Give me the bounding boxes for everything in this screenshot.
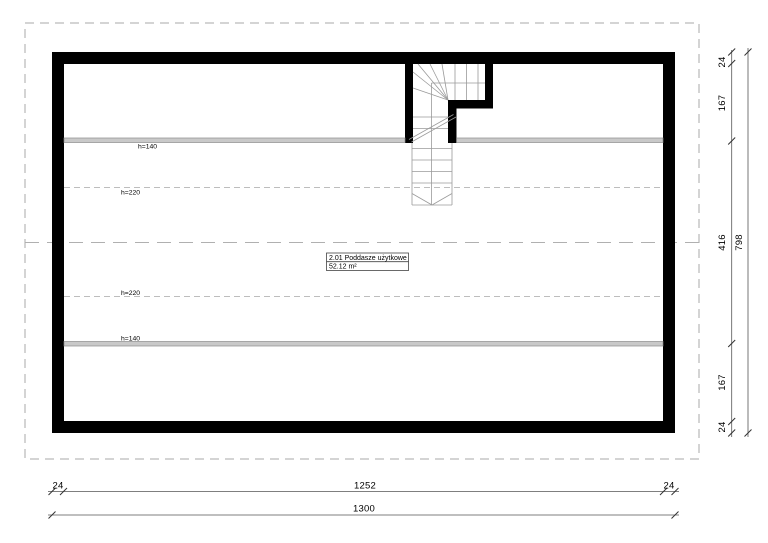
- dim-right-segment-167-top: 167: [717, 95, 728, 111]
- dim-right-segment-416: 416: [717, 234, 728, 250]
- dim-bottom-segment-24-left: 24: [53, 481, 64, 492]
- stair-shaft-treads: [413, 117, 448, 129]
- height-label-h140-top: h=140: [138, 144, 157, 151]
- floor-plan-drawing: h=140 h=220 h=220 h=140 2.01 Poddasze uż…: [0, 0, 768, 543]
- dim-right-segment-24-top: 24: [717, 57, 728, 68]
- floor-plan-canvas: h=140 h=220 h=220 h=140 2.01 Poddasze uż…: [0, 0, 768, 543]
- room-area-label: 52.12 m²: [329, 264, 357, 271]
- dimension-chain-bottom: 24 1252 24 1300: [48, 481, 679, 519]
- dimension-chain-right: 24 167 416 167 24 798: [717, 48, 752, 437]
- height-lines-h220: [64, 188, 663, 297]
- height-label-h220-top: h=220: [121, 190, 140, 197]
- stair-walls: [405, 63, 493, 143]
- dim-bottom-total-1300: 1300: [353, 504, 375, 515]
- stair-direction-chevron: [412, 194, 432, 206]
- stair-lower-flight: [412, 143, 452, 205]
- staircase: [409, 64, 485, 205]
- dim-right-total-798: 798: [734, 234, 745, 250]
- dim-bottom-segment-1252: 1252: [354, 481, 376, 492]
- stair-upper-flight-treads: [455, 64, 478, 100]
- roof-outline-dashed-border: [25, 23, 699, 459]
- height-label-h220-bottom: h=220: [121, 290, 140, 297]
- room-name-label: 2.01 Poddasze użytkowe: [329, 255, 407, 262]
- height-label-h140-bottom: h=140: [121, 336, 140, 343]
- dim-right-segment-24-bottom: 24: [717, 422, 728, 433]
- dim-right-segment-167-bottom: 167: [717, 374, 728, 390]
- stair-winder-treads: [413, 64, 448, 100]
- room-label-box: 2.01 Poddasze użytkowe 52.12 m²: [327, 253, 409, 271]
- dim-bottom-segment-24-right: 24: [664, 481, 675, 492]
- kneewall-bars-h140: [64, 138, 663, 346]
